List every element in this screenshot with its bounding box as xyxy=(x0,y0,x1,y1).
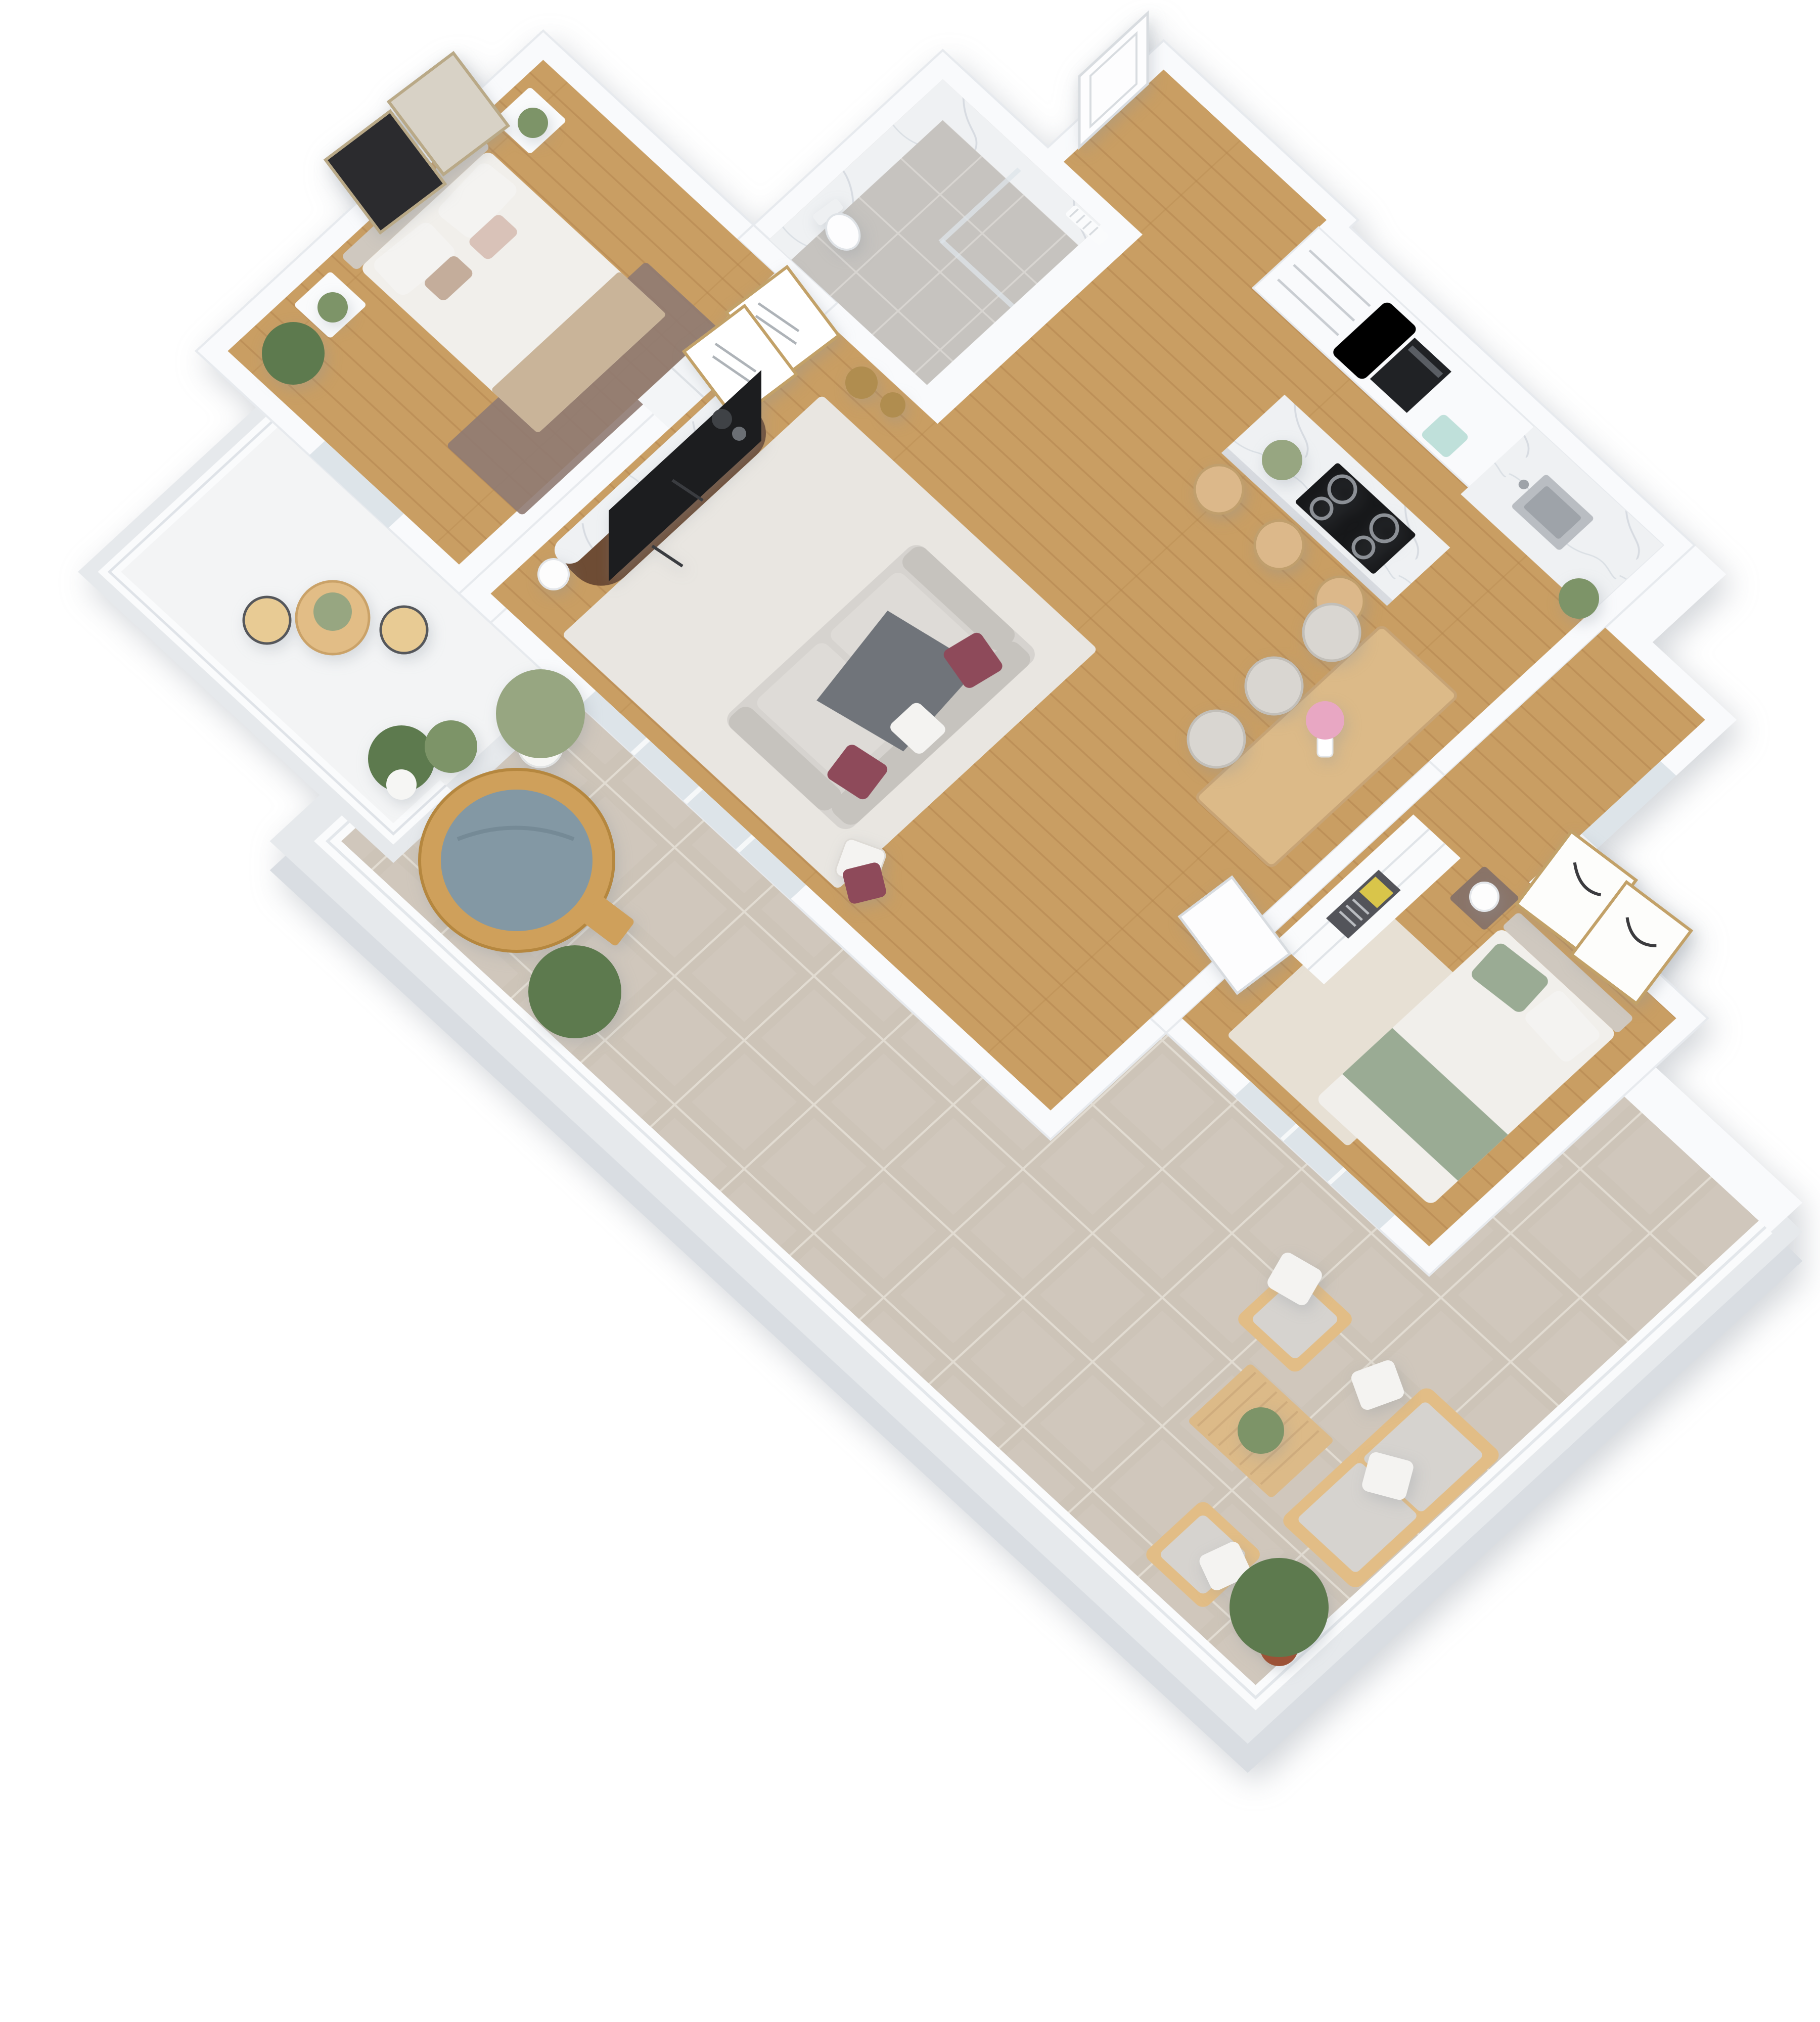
hot-tub-rim xyxy=(420,769,614,951)
outdoor-sofa-frame xyxy=(1279,1385,1503,1591)
living-framed-sketches xyxy=(684,267,839,420)
terrace-tile-floor xyxy=(328,371,1765,1698)
sketch-frame-2 xyxy=(684,306,796,420)
wardrobe-yellow-item xyxy=(1359,877,1393,908)
dining-chair-1 xyxy=(1303,604,1360,661)
terrace xyxy=(254,317,1820,1773)
tv-sideboard-top xyxy=(549,385,748,570)
outdoor-armchair-2-frame xyxy=(1143,1499,1263,1611)
nightstand-plant-right xyxy=(518,108,548,138)
towel-radiator-bars xyxy=(1070,209,1098,235)
olive-plant-pot xyxy=(518,723,563,767)
living-room xyxy=(509,346,1098,890)
apartment-walls xyxy=(196,0,1820,1518)
entrance-door-leaf xyxy=(1079,13,1148,147)
terrace-slab xyxy=(270,317,1816,1743)
gold-floor-vase-2 xyxy=(880,392,905,418)
hallway2-window-glass xyxy=(1581,761,1676,849)
terrace-plant-left xyxy=(528,945,621,1038)
outdoor-sofa-cushion-2 xyxy=(1296,1461,1419,1574)
balcony-plant-2 xyxy=(425,720,477,773)
pine-plant xyxy=(1230,1558,1329,1657)
tv-screen xyxy=(609,370,761,581)
bar-stools xyxy=(1195,465,1364,625)
island-plant xyxy=(1262,440,1302,480)
oven-handle xyxy=(1408,345,1443,378)
tv-sideboard xyxy=(549,385,780,599)
second-bedroom xyxy=(1200,807,1642,1215)
pink-flowers xyxy=(1306,701,1344,740)
floor-pillow-burgundy xyxy=(842,861,888,905)
terrace-parapet-edge xyxy=(328,371,1765,1698)
bedroom2-art-2-ink xyxy=(1620,917,1660,951)
toilet-bowl xyxy=(819,207,867,256)
outdoor-lounge-set xyxy=(1061,1263,1503,1671)
dining-flower-vase xyxy=(1306,701,1344,757)
kitchen-sink-basin xyxy=(1523,485,1582,540)
dining-area xyxy=(1195,625,1458,868)
entrance-door-panel xyxy=(1090,33,1136,126)
flower-vase xyxy=(1317,736,1333,757)
bedroom2-floor xyxy=(1182,790,1676,1246)
outdoor-sofa-cushion-1 xyxy=(1362,1400,1484,1513)
hot-tub-bench-line xyxy=(458,828,574,840)
terrace-overlay xyxy=(420,669,1415,1666)
sofa-pillow-burgundy-1 xyxy=(941,630,1005,690)
living-rug xyxy=(562,395,1098,890)
master-bedroom xyxy=(291,65,806,540)
bathroom xyxy=(769,79,1111,395)
sink-counter xyxy=(1461,426,1663,613)
sketch-frame-1 xyxy=(726,267,839,381)
master-bed xyxy=(359,150,666,434)
balcony-plant-1-pot xyxy=(386,769,417,800)
bar-stool-3 xyxy=(1315,577,1364,625)
sketch-lines-2 xyxy=(713,344,756,384)
floor-plan-canvas xyxy=(0,0,1820,2022)
master-accent-pillow-2 xyxy=(422,254,475,302)
towel-radiator xyxy=(1065,204,1109,246)
master-rug xyxy=(446,261,722,516)
outdoor-armchair-1-cushion xyxy=(1250,1278,1340,1360)
master-accent-pillow-1 xyxy=(467,213,520,261)
bedroom2-pillow-white xyxy=(1522,988,1602,1064)
wall-mass-terrace-top xyxy=(1461,916,1802,1232)
sofa-base xyxy=(722,540,1040,834)
wardrobe-folded-stack xyxy=(1340,899,1369,926)
bistro-table-plant xyxy=(313,592,352,631)
hot-tub-water xyxy=(441,790,593,931)
built-in-oven xyxy=(1370,338,1451,413)
sofa-seat-cushion-1 xyxy=(827,569,985,715)
induction-hob xyxy=(1295,462,1417,575)
wardrobe-door-seams xyxy=(1292,829,1445,970)
open-area-wood-floor xyxy=(490,21,1671,1111)
sofa-arm-left xyxy=(724,703,845,814)
master-window-glass xyxy=(309,441,404,528)
wall-mass-master-bedroom xyxy=(196,31,838,623)
kitchen-cabinet-outline xyxy=(1253,227,1663,606)
wardrobe-open-slot xyxy=(1326,870,1401,939)
bedroom2-window-mullions xyxy=(1282,1125,1345,1183)
olive-plant xyxy=(496,669,585,758)
bedroom2-wardrobe xyxy=(1277,814,1461,984)
sofa-pillow-burgundy-2 xyxy=(825,743,890,802)
bedroom2-pillow-sage xyxy=(1469,941,1551,1015)
nightstand-left xyxy=(293,271,367,339)
master-art-dark xyxy=(326,111,445,233)
dining-chairs xyxy=(1188,604,1360,767)
bathroom-marble-wall-left xyxy=(769,79,965,260)
bedroom2-nightstand xyxy=(1449,865,1520,931)
master-closet-seams xyxy=(672,305,772,397)
bar-stool-1 xyxy=(1195,465,1243,514)
master-closet xyxy=(638,273,806,429)
balcony-slab xyxy=(78,392,588,863)
bistro-table xyxy=(296,581,369,654)
outdoor-armchair-2-cushion xyxy=(1158,1513,1248,1596)
terrace-parapet xyxy=(328,371,1765,1698)
hob-rings xyxy=(1311,476,1397,558)
floor-plan-scene xyxy=(0,0,1820,1773)
master-headboard xyxy=(341,132,490,271)
terrace-slab-side xyxy=(270,346,1816,1773)
lounge-pillow-1 xyxy=(1265,1250,1325,1308)
balcony xyxy=(78,392,588,863)
toilet xyxy=(812,198,867,256)
bedroom2-door-leaf xyxy=(1179,877,1290,993)
master-floor-plant xyxy=(262,322,325,385)
shower-glass-return xyxy=(940,239,1015,308)
bistro-chair-1 xyxy=(381,607,427,653)
bedroom2-art-2 xyxy=(1572,882,1691,1003)
bathroom-floor xyxy=(769,79,1101,385)
coffee-table-slats xyxy=(1198,1372,1318,1484)
nightstand-plant-left xyxy=(317,292,348,323)
living-sliding-doors-glass xyxy=(580,691,806,899)
bar-stool-2 xyxy=(1255,521,1303,569)
pine-plant-pot xyxy=(1260,1628,1298,1666)
sketch-lines-1 xyxy=(756,303,799,344)
wall-mass-main xyxy=(406,0,1703,1139)
nightstand-right xyxy=(493,86,567,154)
sofa-pillow-white xyxy=(888,701,948,756)
bistro-set xyxy=(244,581,477,800)
bedroom2-sphere-lamp xyxy=(1470,883,1498,911)
open-shelf-niche xyxy=(1278,250,1370,335)
master-blanket xyxy=(490,271,666,434)
decor-vase-dark-1 xyxy=(712,409,732,429)
dining-chair-2 xyxy=(1246,658,1302,714)
sofa-arm-right xyxy=(898,543,1019,655)
bathroom-marble-wall-top xyxy=(921,79,1101,245)
bedroom2-blanket-sage xyxy=(1342,1028,1508,1181)
entrance-door xyxy=(1079,13,1148,147)
floors xyxy=(227,0,1820,1353)
wall-mass-hallway2 xyxy=(1397,599,1737,911)
hallway2-floor xyxy=(1429,628,1705,883)
lounge-pillow-2 xyxy=(1349,1358,1406,1412)
master-bedroom-floor xyxy=(227,60,775,564)
decor-vase-dark-2 xyxy=(732,427,746,441)
kitchen xyxy=(1148,227,1663,703)
balcony-railing-edge xyxy=(109,422,556,834)
bedroom2-bed xyxy=(1315,927,1617,1206)
windows-doors xyxy=(309,0,1773,1336)
table-lamp xyxy=(538,559,569,589)
bedroom2-art-1 xyxy=(1517,832,1636,953)
balcony-plant-1 xyxy=(368,725,435,792)
outdoor-armchair-1-frame xyxy=(1235,1263,1355,1375)
sliding-door-mullions xyxy=(632,739,753,851)
lounge-pillow-4 xyxy=(1197,1539,1253,1592)
kitchen-cabinet-run xyxy=(1253,227,1663,606)
master-pillow-2 xyxy=(371,219,459,298)
kitchen-island-edge xyxy=(1221,447,1393,606)
balcony-railing xyxy=(109,422,556,834)
overlay-standing-items xyxy=(244,13,1691,1666)
hot-tub-step-ladder xyxy=(581,895,635,947)
tv-stand-legs xyxy=(652,480,703,566)
dining-table xyxy=(1195,625,1458,868)
sofa-throw-blanket xyxy=(803,596,987,766)
bistro-chair-2 xyxy=(244,597,290,644)
bedroom2-headboard xyxy=(1501,911,1634,1034)
bedroom2-window-glass xyxy=(1235,1081,1395,1229)
dining-table-edge xyxy=(1195,625,1458,868)
master-pillow-1 xyxy=(435,160,520,241)
master-art-light xyxy=(389,53,508,174)
fridge-front xyxy=(1331,300,1419,382)
toilet-tank xyxy=(812,198,844,226)
wall-seams xyxy=(196,0,1820,1382)
coffee-table-plant xyxy=(1238,1407,1284,1454)
wall-mass-bedroom2 xyxy=(1151,761,1708,1276)
iso-plan xyxy=(0,0,1820,1773)
toaster xyxy=(1420,413,1470,459)
shower-glass-panel xyxy=(938,168,1021,244)
balcony-floor xyxy=(109,422,556,834)
floor-pillows xyxy=(834,837,887,905)
dining-chair-3 xyxy=(1188,711,1245,767)
wall-mass-kitchen-end xyxy=(1598,545,1726,664)
bedroom2-rug xyxy=(1226,899,1494,1147)
sofa-backrest xyxy=(827,637,1035,829)
sofa-seat-cushion-2 xyxy=(753,640,908,783)
kitchen-island xyxy=(1221,395,1450,606)
bedroom2-art-1-ink xyxy=(1567,862,1607,897)
counter-plant xyxy=(1559,578,1599,619)
flo​or-pillow-white xyxy=(834,837,887,889)
kitchen-faucet xyxy=(1516,478,1531,491)
kitchen-sink xyxy=(1511,474,1595,552)
outdoor-coffee-table xyxy=(1187,1363,1334,1499)
gold-floor-vase-1 xyxy=(845,366,878,399)
lounge-pillow-3 xyxy=(1360,1451,1415,1502)
